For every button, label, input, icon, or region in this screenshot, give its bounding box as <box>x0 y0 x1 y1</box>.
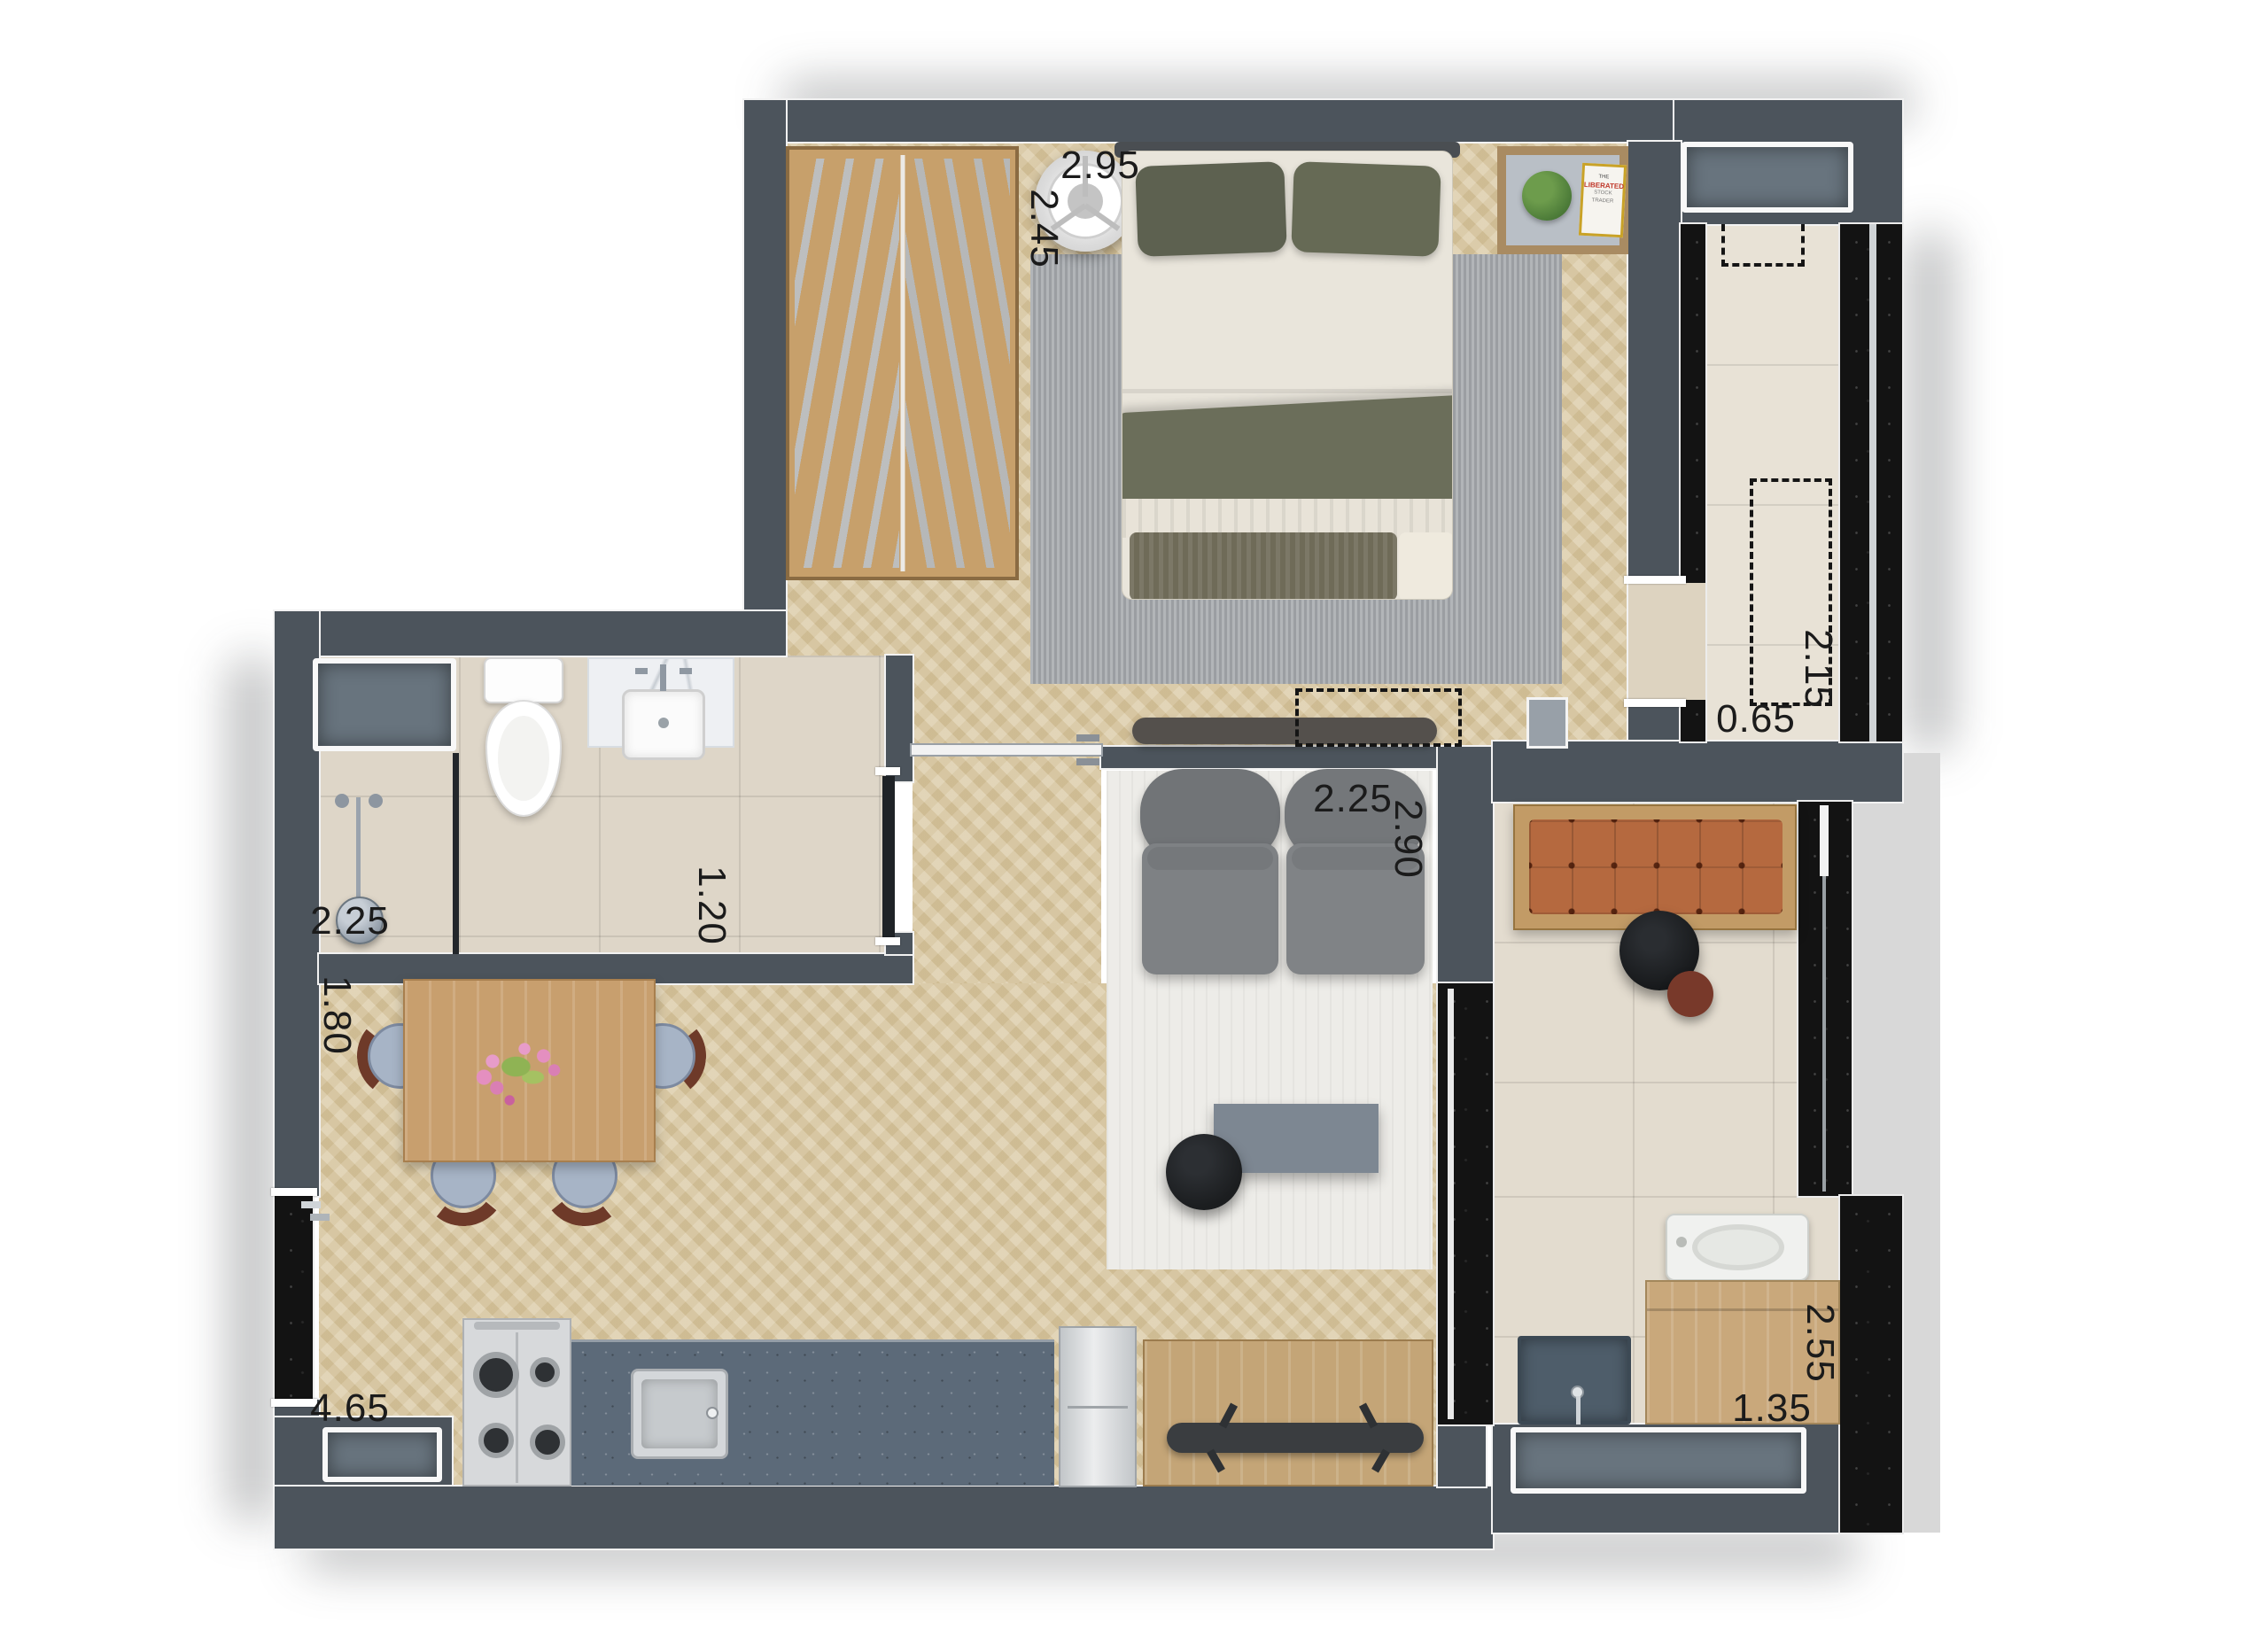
faucet-handle <box>680 668 692 674</box>
double-bed <box>1122 151 1453 600</box>
bathroom-vanity <box>587 657 734 748</box>
pillow-left <box>1135 161 1286 257</box>
sink-faucet <box>706 1407 718 1419</box>
dim-bedroom-width: 2.95 <box>1060 146 1140 185</box>
toilet <box>484 657 563 817</box>
sliding-glass-door-line <box>1448 989 1454 1419</box>
wall-balcony-top <box>1493 741 1902 802</box>
dim-kitchen-width: 4.65 <box>310 1389 390 1428</box>
laundry-granite-right <box>1840 1196 1902 1533</box>
laundry-faucet-stem <box>1576 1396 1581 1425</box>
wall-bedroom-top <box>744 100 1674 142</box>
shower-valve <box>335 794 349 808</box>
nightstand: THE LIBERATED STOCK TRADER <box>1497 146 1628 254</box>
stove-handle <box>474 1322 560 1330</box>
entry-threshold-granite <box>275 1196 313 1400</box>
plant-icon <box>1522 171 1572 221</box>
bedroom-door-opening <box>1628 583 1705 700</box>
wardrobe-rail <box>900 155 905 571</box>
orchid-centerpiece <box>461 1026 567 1114</box>
shadow-right <box>1907 230 1953 753</box>
dim-laundry-depth: 2.55 <box>1800 1303 1839 1383</box>
book-title-line3: STOCK TRADER <box>1583 189 1623 206</box>
bathroom-door-jamb-bottom <box>875 937 900 945</box>
dim-laundry-width: 1.35 <box>1732 1389 1812 1428</box>
tv-console <box>1143 1339 1433 1487</box>
stove <box>462 1318 571 1487</box>
sofa-module-left <box>1140 769 1280 974</box>
washer-lid <box>1692 1224 1784 1270</box>
balcony-glass-line <box>1822 876 1826 1192</box>
bedroom-door-jamb-top <box>1624 576 1686 584</box>
wall-corner-piece <box>1438 1425 1486 1487</box>
partition-handle <box>1076 758 1099 765</box>
corridor-granite-right <box>1840 224 1902 741</box>
burner-small <box>530 1357 560 1387</box>
wardrobe-hangers-left <box>795 159 899 568</box>
kitchen-window <box>322 1427 442 1482</box>
dim-bedroom-depth: 2.45 <box>1024 189 1063 268</box>
wall-bedroom-left <box>744 100 786 656</box>
burner-small <box>530 1425 565 1460</box>
stove-divider <box>516 1332 518 1483</box>
living-balcony-divider <box>1438 983 1493 1425</box>
laundry-window <box>1511 1427 1806 1494</box>
duvet-corner <box>1399 532 1453 600</box>
dim-corridor-depth: 2.15 <box>1798 629 1837 709</box>
washer-knob <box>1676 1237 1687 1247</box>
balcony-granite-right <box>1798 802 1852 1196</box>
fridge-divider <box>1068 1406 1128 1409</box>
dim-living-width: 2.25 <box>1313 780 1393 819</box>
knit-throw <box>1130 532 1397 600</box>
balcony-bench-cushion <box>1529 819 1783 914</box>
bedroom-door-leaf <box>1526 697 1568 749</box>
wardrobe-hangers-right <box>905 159 1010 568</box>
dim-dining-depth: 1.80 <box>317 975 356 1055</box>
partition-handle <box>1076 734 1099 741</box>
balcony-glass-segment <box>1820 805 1829 876</box>
faucet-handle <box>635 668 648 674</box>
kitchen-counter <box>571 1339 1054 1486</box>
entry-door-handle <box>310 1214 330 1221</box>
balcony-rust-table <box>1667 971 1713 1017</box>
tv <box>1167 1423 1424 1453</box>
burner-small <box>478 1423 514 1458</box>
ac-dashed-outline-bedroom <box>1295 688 1462 747</box>
wardrobe <box>786 146 1019 580</box>
wall-bathroom-top <box>275 611 786 656</box>
pillow-right <box>1291 161 1441 257</box>
washing-machine <box>1666 1214 1809 1281</box>
bedroom-sliding-partition <box>910 743 1103 757</box>
shadow-left <box>229 656 276 1524</box>
sheet-fold-line <box>1122 389 1453 393</box>
dim-living-depth: 2.90 <box>1388 799 1427 879</box>
book: THE LIBERATED STOCK TRADER <box>1579 163 1627 238</box>
toilet-tank <box>484 657 563 703</box>
basin-faucet <box>660 664 666 691</box>
bathroom-window <box>313 658 456 751</box>
sofa-bolster <box>1147 847 1273 870</box>
wall-bottom <box>275 1487 1493 1549</box>
floor-plan: THE LIBERATED STOCK TRADER <box>0 0 2268 1638</box>
entry-jamb-top <box>271 1188 317 1196</box>
corridor-glass-line <box>1869 224 1876 741</box>
shower-valve <box>369 794 383 808</box>
dim-bathroom-depth: 1.20 <box>692 866 731 945</box>
wall-bathroom-right-a <box>886 656 913 781</box>
burner-large <box>473 1352 519 1398</box>
bathroom-sliding-door <box>882 776 895 937</box>
corridor-window <box>1682 142 1853 213</box>
toilet-bowl-inner <box>498 716 549 801</box>
refrigerator <box>1059 1326 1137 1487</box>
bedroom-door-jamb-bottom <box>1624 699 1686 707</box>
wall-living-right <box>1438 747 1493 983</box>
laundry-sink <box>1518 1336 1631 1425</box>
dim-corridor-width: 0.65 <box>1716 700 1796 739</box>
entry-door-handle <box>301 1201 321 1208</box>
bathroom-door-jamb-top <box>875 767 900 775</box>
shower-glass-partition <box>453 753 459 954</box>
hall-floor <box>913 747 1101 983</box>
ac-unit-dashed-top <box>1721 224 1805 267</box>
dim-bathroom-width: 2.25 <box>310 902 390 941</box>
basin-drain <box>658 718 669 728</box>
kitchen-sink <box>631 1369 728 1459</box>
marble-side-table <box>1166 1134 1242 1210</box>
